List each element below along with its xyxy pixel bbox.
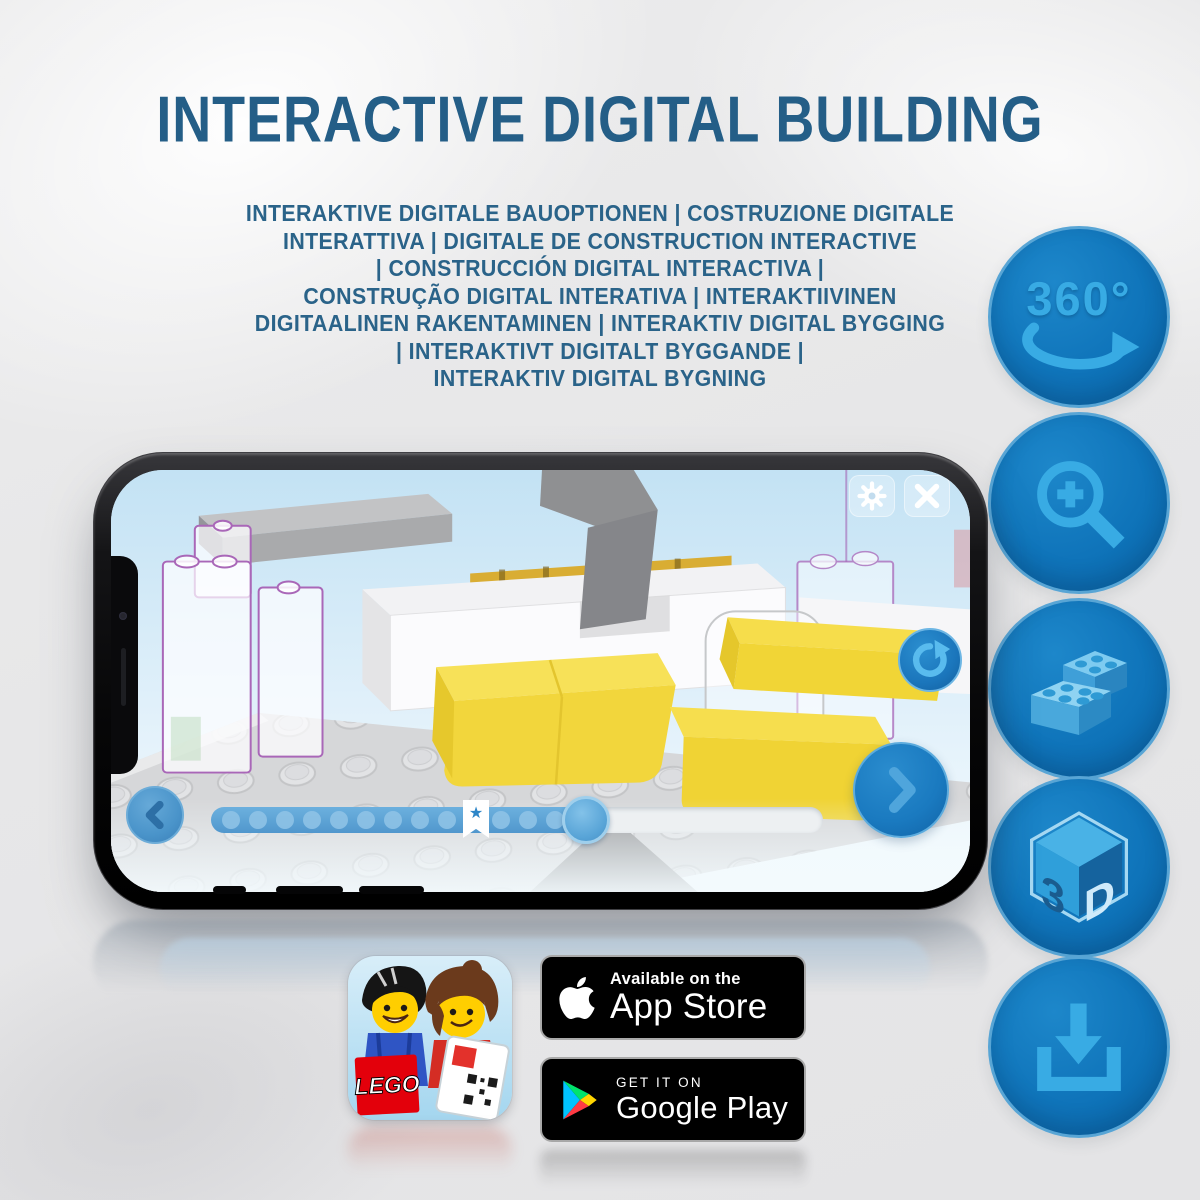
close-icon — [913, 482, 941, 510]
previous-step-button[interactable] — [126, 786, 184, 844]
chevron-right-icon — [868, 757, 934, 823]
next-step-button[interactable] — [853, 742, 949, 838]
phone-edge-button — [359, 886, 424, 894]
app-screen: ★ — [111, 470, 970, 892]
feature-download — [988, 956, 1170, 1138]
google-play-badge[interactable]: GET IT ON Google Play — [540, 1057, 806, 1142]
settings-button[interactable] — [849, 475, 895, 517]
lego-app-icon[interactable]: LEGO — [348, 956, 512, 1120]
phone-edge-button — [276, 886, 343, 894]
speaker-slit — [121, 648, 126, 706]
gear-icon — [857, 481, 887, 511]
rotation-arrow-icon — [1016, 322, 1142, 370]
app-store-badge[interactable]: Available on the App Store — [540, 955, 806, 1040]
download-icon — [1029, 997, 1129, 1097]
chevron-left-icon — [135, 795, 175, 835]
rotate-arrow-icon — [909, 639, 951, 681]
promo-canvas: INTERACTIVE DIGITAL BUILDING INTERAKTIVE… — [0, 0, 1200, 1200]
build-progress-bar[interactable]: ★ — [211, 807, 823, 833]
google-play-tagline: GET IT ON — [616, 1074, 788, 1091]
phone-mockup: ★ — [93, 452, 988, 910]
page-title: INTERACTIVE DIGITAL BUILDING — [0, 82, 1200, 149]
rotate-360-icon: 360° — [1026, 275, 1131, 322]
feature-brick — [988, 598, 1170, 780]
app-icon-reflection — [348, 1128, 512, 1176]
camera-icon — [119, 612, 127, 620]
camera-notch — [111, 556, 138, 774]
phone-edge-button — [213, 886, 246, 894]
google-play-icon — [558, 1078, 602, 1122]
badge-reflection — [540, 1150, 806, 1190]
app-store-label: App Store — [610, 989, 767, 1025]
feature-zoom — [988, 412, 1170, 594]
feature-3d-view: 3 D — [988, 776, 1170, 958]
multilingual-subtitle: INTERAKTIVE DIGITALE BAUOPTIONEN | COSTR… — [170, 199, 1030, 392]
cube-3d-icon: 3 D — [1027, 811, 1131, 923]
lego-brick-icon — [1023, 639, 1135, 739]
lego-logo-text: LEGO — [354, 1070, 421, 1099]
rotate-model-button[interactable] — [898, 628, 962, 692]
progress-fill — [211, 807, 593, 833]
feature-360-rotation: 360° — [988, 226, 1170, 408]
zoom-in-icon — [1029, 453, 1129, 553]
app-icon-art: LEGO — [348, 956, 512, 1120]
progress-handle[interactable] — [562, 796, 610, 844]
close-button[interactable] — [904, 475, 950, 517]
google-play-label: Google Play — [616, 1091, 788, 1125]
apple-icon — [558, 974, 596, 1022]
